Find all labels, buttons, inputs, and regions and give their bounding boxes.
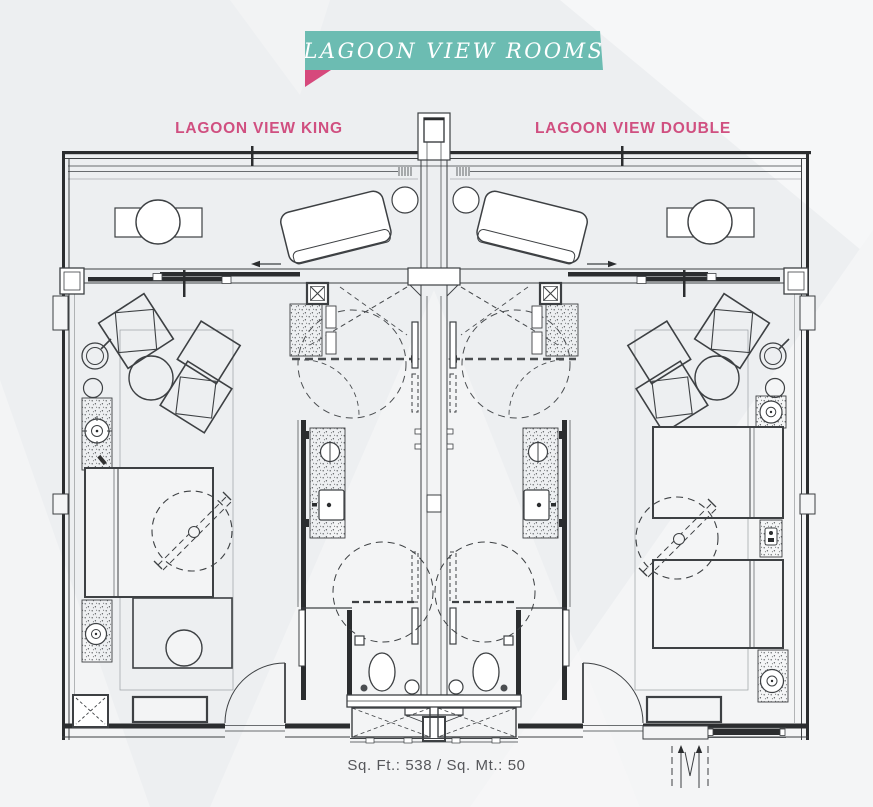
king-room-label: LAGOON VIEW KING	[175, 120, 343, 138]
nightstand-with-speaker	[82, 600, 112, 662]
wall-niche	[800, 494, 815, 514]
area-text: Sq. Ft.: 538 / Sq. Mt.: 50	[0, 757, 873, 774]
railing-ticks	[399, 167, 469, 176]
double-room-label: LAGOON VIEW DOUBLE	[535, 120, 731, 138]
nightstand-with-phone	[760, 520, 782, 557]
wall-niche	[53, 494, 68, 514]
door-panel	[299, 610, 305, 666]
title-banner: LAGOON VIEW ROOMS	[305, 31, 603, 70]
corner-speaker	[758, 650, 788, 702]
balcony-side-table	[453, 187, 479, 213]
console-with-speaker	[82, 398, 112, 470]
chaise-lounge	[279, 189, 394, 266]
square-sink	[319, 490, 344, 520]
door-panel	[563, 610, 569, 666]
side-stool	[84, 379, 103, 398]
spiral-lamp	[82, 339, 111, 369]
square-sink	[524, 490, 549, 520]
bench	[133, 697, 207, 722]
round-table	[129, 356, 173, 400]
armchair	[695, 294, 770, 369]
console-with-speaker	[756, 396, 786, 428]
double-bed-1	[653, 427, 783, 518]
wall-niche	[53, 296, 68, 330]
lagoon-view-rooms-floorplan: LAGOON VIEW ROOMS LAGOON VIEW KING LAGOO…	[0, 0, 873, 807]
floorplan-drawing	[0, 0, 873, 807]
king-room-plan	[73, 294, 285, 731]
round-table	[695, 356, 739, 400]
chaise-lounge	[475, 189, 590, 266]
balcony-round-table	[688, 200, 732, 244]
balcony-furniture	[115, 187, 754, 266]
balcony-round-table	[136, 200, 180, 244]
bench	[647, 697, 721, 722]
title-banner-text: LAGOON VIEW ROOMS	[303, 39, 604, 63]
double-bed-2	[653, 560, 783, 648]
foot-table-with-chair	[133, 598, 232, 668]
luggage-rack	[73, 695, 108, 727]
slide-arrow-right	[587, 261, 617, 267]
phone-icon	[769, 531, 773, 535]
slide-arrow-left	[251, 261, 281, 267]
balcony-side-table	[392, 187, 418, 213]
armchair	[99, 294, 174, 369]
wall-niche	[800, 296, 815, 330]
